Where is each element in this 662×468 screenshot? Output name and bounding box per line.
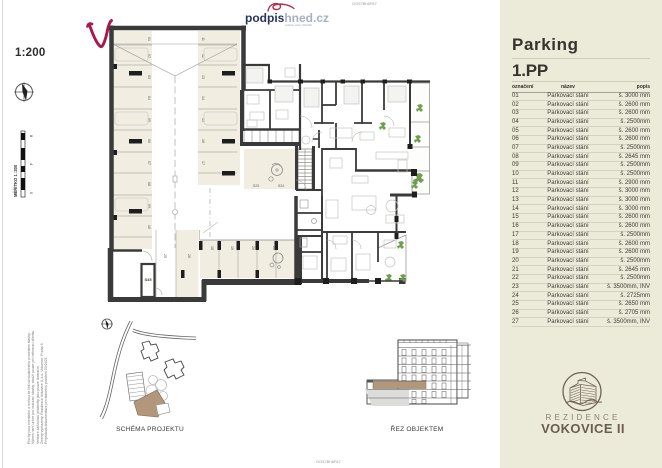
svg-text:03: 03: [147, 75, 151, 79]
svg-text:S45: S45: [144, 277, 152, 282]
svg-text:S23: S23: [253, 184, 259, 188]
svg-text:25: 25: [163, 254, 167, 258]
svg-text:08: 08: [147, 182, 151, 186]
svg-text:4: 4: [29, 163, 34, 166]
svg-text:10: 10: [147, 225, 151, 229]
svg-text:8: 8: [29, 135, 34, 138]
svg-text:16: 16: [201, 139, 205, 143]
svg-text:S24: S24: [278, 184, 284, 188]
svg-text:07: 07: [147, 161, 151, 165]
svg-text:podpisy smluv ONLINE: podpisy smluv ONLINE: [285, 23, 312, 27]
svg-text:04: 04: [147, 96, 151, 100]
svg-text:13: 13: [201, 75, 205, 79]
svg-text:19: 19: [230, 246, 234, 250]
svg-text:11: 11: [201, 37, 205, 41]
svg-text:17: 17: [201, 161, 205, 165]
svg-text:18: 18: [210, 246, 214, 250]
svg-text:14: 14: [201, 96, 205, 100]
svg-text:26: 26: [187, 254, 191, 258]
svg-text:MĚŘÍTKO 1 :200: MĚŘÍTKO 1 :200: [13, 164, 18, 197]
svg-text:20: 20: [251, 246, 255, 250]
svg-text:0: 0: [29, 192, 34, 195]
svg-text:06: 06: [147, 139, 151, 143]
svg-text:01: 01: [147, 37, 151, 41]
svg-text:VOKOVICE II: VOKOVICE II: [541, 421, 625, 436]
svg-text:podpishned.cz: podpishned.cz: [245, 11, 329, 25]
